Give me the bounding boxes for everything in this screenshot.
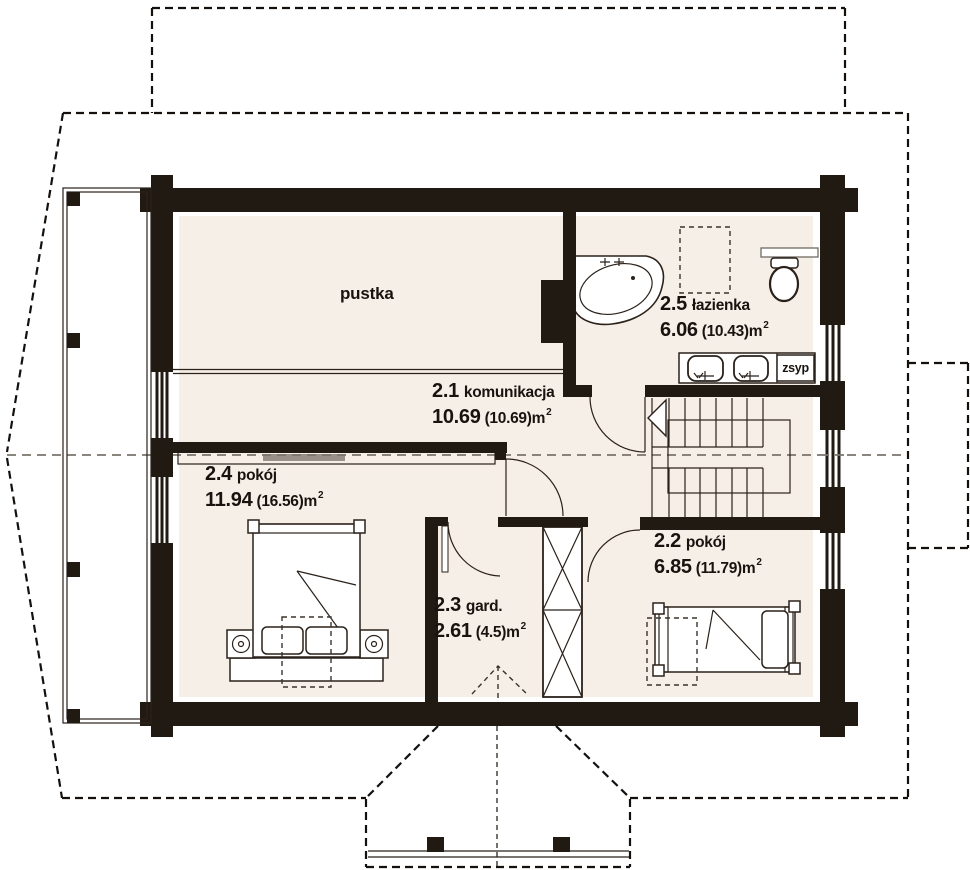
bench [230,658,383,681]
ventilation-shaft [543,527,582,697]
window [151,477,173,543]
sink [734,356,768,381]
void-label: pustka [340,284,394,304]
balcony-post [67,192,80,206]
wall-hall-bedroom24 [173,442,507,453]
wall-wardrobe-top [498,517,588,527]
chute-label: zsyp [777,355,814,381]
floor-plan-canvas: 2.1komunikacja 10.69(10.69)m2 2.2pokój 6… [0,0,970,870]
balcony-post [67,562,80,577]
porch-roof-dashed [366,726,630,798]
knee-wall-bar [263,454,345,461]
wall-bathroom-bottom [563,385,592,397]
wall-left [151,175,173,737]
window [820,430,845,487]
porch-railing [368,837,629,857]
room-label-2-2: 2.2pokój 6.85(11.79)m2 [654,531,762,577]
wall-bathroom-left [563,212,576,388]
porch-post [553,837,570,852]
balcony-post [67,333,80,348]
chimney-block [541,280,565,343]
room-label-2-1: 2.1komunikacja 10.69(10.69)m2 [432,381,555,427]
pillow [262,627,303,654]
wall-top [140,188,858,212]
toilet-shelf [761,248,818,257]
pillow [762,611,788,668]
side-dormer-dashed [908,363,968,548]
balcony-post [67,709,80,723]
wall-bedroom22-top [640,517,820,530]
balcony [63,188,151,723]
room-label-2-3: 2.3gard. 2.61(4.5)m2 [434,595,526,641]
window [820,533,845,589]
wall-door-stub [495,443,506,460]
wall-bathroom-bottom [645,385,820,397]
pillow [306,627,347,654]
nightstand-left [227,630,255,658]
porch-post [427,837,444,852]
window [820,325,845,381]
bedroom-22-furniture [647,601,800,685]
room-label-2-4: 2.4pokój 11.94(16.56)m2 [205,464,323,510]
toilet-bowl [770,267,798,301]
room-label-2-5: 2.5łazienka 6.06(10.43)m2 [660,294,769,340]
wall-bottom [140,702,858,726]
nightstand-right [360,630,388,658]
window [151,372,173,438]
floor-plan-drawing [0,0,970,870]
